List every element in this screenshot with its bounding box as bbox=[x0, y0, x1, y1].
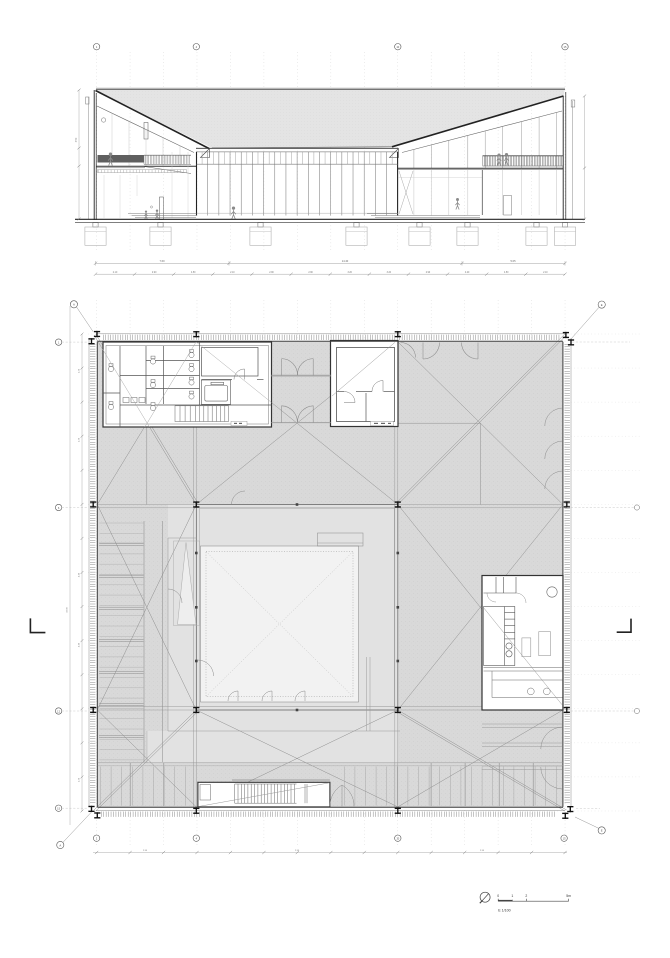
svg-text:5.05: 5.05 bbox=[510, 259, 516, 263]
svg-text:3.50: 3.50 bbox=[76, 137, 78, 142]
svg-text:14.40: 14.40 bbox=[342, 259, 349, 263]
svg-text:E: E bbox=[601, 303, 603, 307]
svg-text:2.90: 2.90 bbox=[152, 272, 157, 274]
svg-text:2.10: 2.10 bbox=[543, 272, 548, 274]
svg-text:4.50: 4.50 bbox=[191, 272, 196, 274]
svg-text:2.10: 2.10 bbox=[230, 272, 235, 274]
svg-text:0: 0 bbox=[497, 894, 499, 898]
svg-text:A: A bbox=[59, 843, 61, 847]
svg-text:4.50: 4.50 bbox=[504, 272, 509, 274]
svg-text:1: 1 bbox=[511, 894, 513, 898]
svg-text:7.60: 7.60 bbox=[159, 259, 165, 263]
svg-text:E: E bbox=[601, 829, 603, 833]
svg-text:E 1/100: E 1/100 bbox=[498, 909, 510, 913]
svg-text:3.20: 3.20 bbox=[347, 272, 352, 274]
svg-text:2.90: 2.90 bbox=[308, 272, 313, 274]
svg-text:2.10: 2.10 bbox=[113, 272, 118, 274]
svg-text:4.20: 4.20 bbox=[465, 272, 470, 274]
svg-text:A: A bbox=[73, 303, 75, 307]
svg-text:2.90: 2.90 bbox=[426, 272, 431, 274]
svg-text:33.00: 33.00 bbox=[67, 606, 69, 612]
svg-text:5m: 5m bbox=[566, 894, 571, 898]
svg-text:2.90: 2.90 bbox=[269, 272, 274, 274]
svg-text:2: 2 bbox=[525, 894, 527, 898]
svg-text:3.20: 3.20 bbox=[387, 272, 392, 274]
